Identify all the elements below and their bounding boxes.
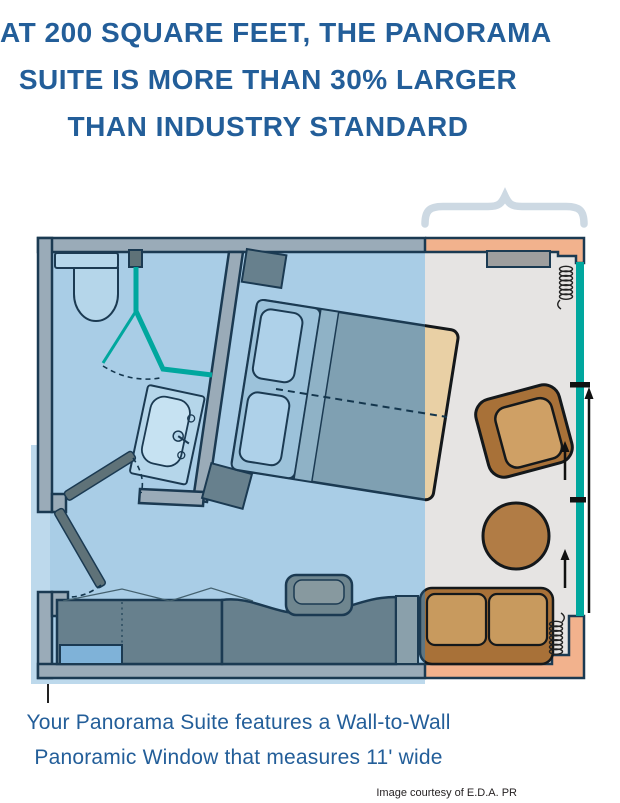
caption-line-1: Your Panorama Suite features a Wall-to-W… <box>0 705 477 740</box>
infographic: AT 200 SQUARE FEET, THE PANORAMA SUITE I… <box>0 0 620 803</box>
floor-plan <box>0 0 620 803</box>
wall-bottom <box>38 664 425 678</box>
panoramic-window <box>576 262 584 616</box>
tv-console <box>487 251 550 267</box>
sofa <box>420 588 553 664</box>
caption-line-2: Panoramic Window that measures 11' wide <box>0 740 477 775</box>
bed <box>231 299 459 501</box>
wall-left-upper <box>38 238 52 512</box>
caption: Your Panorama Suite features a Wall-to-W… <box>0 705 477 775</box>
extra-width-brace <box>425 196 584 224</box>
image-credit: Image courtesy of E.D.A. PR <box>0 786 517 800</box>
desk-chair <box>286 575 352 615</box>
window-tick-upper <box>570 382 590 388</box>
safe-drawer <box>60 645 122 664</box>
window-tick-lower <box>570 497 586 503</box>
wall-top <box>38 238 425 252</box>
coffee-table <box>483 503 549 569</box>
nightstand-top <box>242 249 287 288</box>
wall-shower-stub <box>129 250 142 267</box>
wall-bathroom-bottom <box>139 489 204 506</box>
